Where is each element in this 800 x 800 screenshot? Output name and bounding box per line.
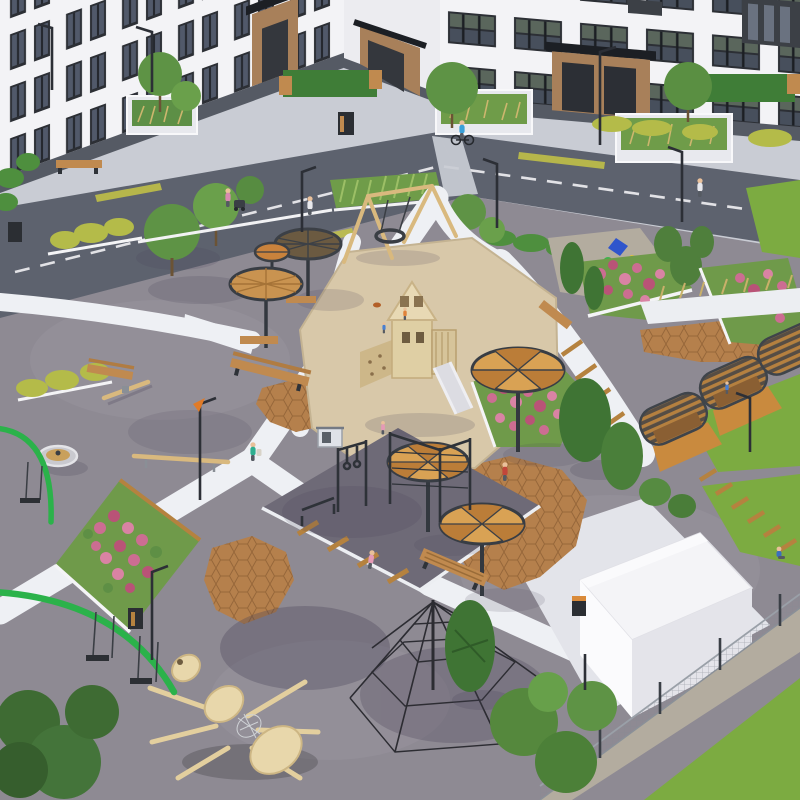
- dog: [373, 303, 381, 308]
- rendered-scene: [0, 0, 800, 800]
- bench: [240, 336, 278, 344]
- swing-seat: [130, 678, 152, 684]
- utility-box: [316, 428, 344, 447]
- swing-seat: [20, 498, 40, 503]
- swing-seat: [86, 655, 109, 661]
